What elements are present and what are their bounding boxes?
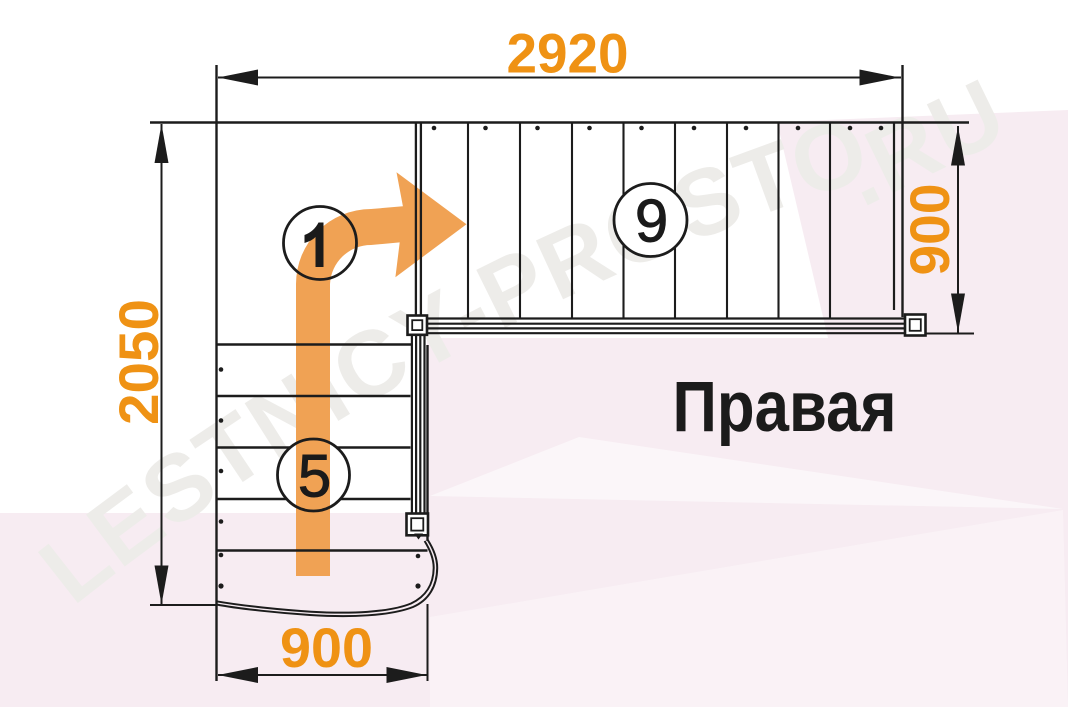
svg-text:900: 900 [898, 184, 961, 276]
svg-text:5: 5 [298, 443, 331, 510]
svg-text:2050: 2050 [107, 299, 170, 425]
svg-text:900: 900 [280, 616, 373, 679]
svg-text:9: 9 [635, 188, 668, 255]
svg-text:Правая: Правая [673, 368, 897, 447]
svg-text:2920: 2920 [507, 22, 629, 85]
